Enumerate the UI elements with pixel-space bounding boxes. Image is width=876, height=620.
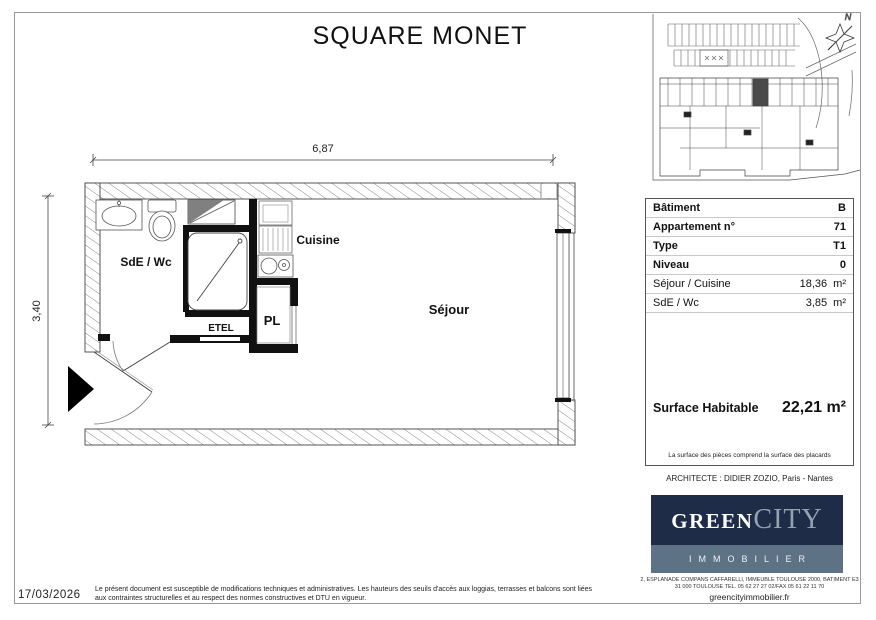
room-label-closet: PL	[264, 313, 281, 328]
site-building	[660, 78, 838, 176]
info-value: B	[838, 202, 846, 214]
info-panel: Bâtiment B Appartement n° 71 Type T1 Niv…	[645, 198, 854, 466]
area-value: 3,85m²	[806, 297, 846, 309]
area-label: Séjour / Cuisine	[653, 278, 731, 290]
bathroom-door	[113, 341, 170, 371]
info-label: Niveau	[653, 259, 689, 271]
surface-habitable-row: Surface Habitable 22,21 m²	[653, 399, 846, 417]
document-date: 17/03/2026	[18, 589, 81, 601]
legal-line-2: aux contraintes structurelles et au resp…	[95, 594, 640, 603]
site-plan: N	[653, 12, 860, 180]
kitchen-units	[259, 201, 292, 253]
cooktop-icon	[258, 255, 293, 277]
greencity-logo: GREENCITY IMMOBILIER	[651, 495, 843, 573]
entry-door	[94, 350, 153, 424]
dim-height-label: 3,40	[31, 300, 43, 321]
legal-disclaimer: Le présent document est susceptible de m…	[95, 585, 640, 603]
shower-icon	[188, 233, 247, 310]
etel-vent	[200, 337, 240, 341]
dimension-height	[42, 193, 54, 428]
site-roads	[798, 18, 856, 128]
info-row-type: Type T1	[646, 237, 853, 256]
logo-band: IMMOBILIER	[651, 545, 843, 573]
floorplan-document: SQUARE MONET 6,87	[0, 0, 876, 620]
toilet-icon	[148, 200, 176, 241]
north-label: N	[845, 12, 852, 22]
info-row-batiment: Bâtiment B	[646, 199, 853, 218]
room-label-bathroom: SdE / Wc	[120, 255, 172, 269]
logo-subtitle: IMMOBILIER	[682, 554, 812, 564]
area-row-sejour-cuisine: Séjour / Cuisine 18,36m²	[646, 275, 853, 294]
area-row-sde-wc: SdE / Wc 3,85m²	[646, 294, 853, 313]
sink-icon	[96, 200, 142, 230]
highlighted-unit	[753, 79, 768, 106]
address-line-2: 31 000 TOULOUSE TEL. 05 62 27 27 02/FAX …	[640, 584, 859, 591]
room-label-etel: ETEL	[208, 323, 234, 334]
info-label: Type	[653, 240, 678, 252]
info-value: 0	[840, 259, 846, 271]
info-value: 71	[834, 221, 846, 233]
room-label-living: Séjour	[429, 302, 469, 317]
info-row-niveau: Niveau 0	[646, 256, 853, 275]
entry-arrow-icon	[68, 366, 94, 412]
north-compass-icon	[826, 24, 854, 52]
architect-credit: ARCHITECTE : DIDIER ZOZIO, Paris - Nante…	[645, 474, 854, 483]
surface-note: La surface des pièces comprend la surfac…	[646, 452, 853, 459]
surface-label: Surface Habitable	[653, 401, 759, 415]
company-address: 2, ESPLANADE COMPANS CAFFARELLI, IMMEUBL…	[640, 577, 859, 590]
dim-width-label: 6,87	[312, 143, 333, 155]
info-value: T1	[833, 240, 846, 252]
logo-wordmark: GREENCITY	[651, 495, 843, 545]
logo-green-text: GREEN	[671, 496, 753, 546]
dimension-width	[90, 154, 556, 166]
legal-line-1: Le présent document est susceptible de m…	[95, 585, 640, 594]
room-label-kitchen: Cuisine	[296, 233, 340, 247]
info-label: Appartement n°	[653, 221, 735, 233]
wall-joint	[541, 184, 557, 198]
floor-plan: 6,87 3,40	[31, 143, 575, 445]
info-label: Bâtiment	[653, 202, 700, 214]
logo-city-text: CITY	[753, 495, 822, 545]
company-website: greencityimmobilier.fr	[645, 592, 854, 602]
info-row-appartement: Appartement n° 71	[646, 218, 853, 237]
area-label: SdE / Wc	[653, 297, 699, 309]
area-value: 18,36m²	[800, 278, 846, 290]
duct-shaft	[188, 200, 235, 224]
surface-value: 22,21 m²	[782, 399, 846, 417]
address-line-1: 2, ESPLANADE COMPANS CAFFARELLI, IMMEUBL…	[640, 577, 859, 584]
window	[555, 229, 574, 402]
parking-rows	[668, 24, 800, 66]
